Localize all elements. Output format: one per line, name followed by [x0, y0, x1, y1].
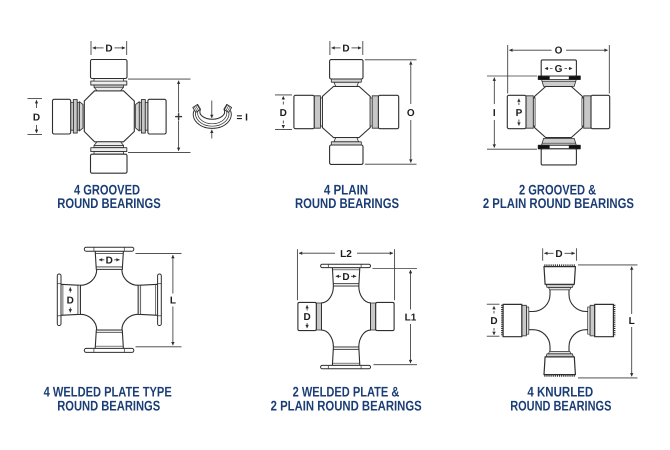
svg-text:ROUND BEARINGS: ROUND BEARINGS: [510, 398, 611, 414]
svg-text:= I: = I: [237, 112, 249, 123]
svg-text:2 PLAIN ROUND BEARINGS: 2 PLAIN ROUND BEARINGS: [483, 195, 634, 211]
svg-text:L: L: [629, 316, 635, 327]
svg-text:2 PLAIN ROUND BEARINGS: 2 PLAIN ROUND BEARINGS: [271, 398, 422, 414]
svg-text:O: O: [555, 46, 563, 57]
svg-text:D: D: [555, 249, 562, 260]
svg-text:D: D: [342, 44, 349, 55]
svg-text:ROUND BEARINGS: ROUND BEARINGS: [295, 195, 399, 211]
svg-text:G: G: [555, 64, 563, 75]
svg-text:D: D: [303, 312, 310, 323]
svg-text:ROUND BEARINGS: ROUND BEARINGS: [57, 398, 160, 414]
svg-text:O: O: [407, 108, 415, 119]
svg-text:D: D: [106, 255, 113, 266]
svg-text:D: D: [67, 295, 74, 306]
svg-text:D: D: [490, 316, 497, 327]
svg-text:L1: L1: [405, 312, 417, 323]
svg-text:D: D: [33, 112, 40, 123]
svg-text:D: D: [280, 108, 287, 119]
svg-text:L: L: [170, 295, 176, 306]
svg-text:P: P: [516, 108, 523, 119]
svg-text:ROUND BEARINGS: ROUND BEARINGS: [57, 195, 161, 211]
svg-text:D: D: [105, 44, 112, 55]
svg-text:L2: L2: [340, 249, 352, 260]
svg-text:D: D: [342, 272, 349, 283]
svg-text:I: I: [493, 108, 496, 119]
